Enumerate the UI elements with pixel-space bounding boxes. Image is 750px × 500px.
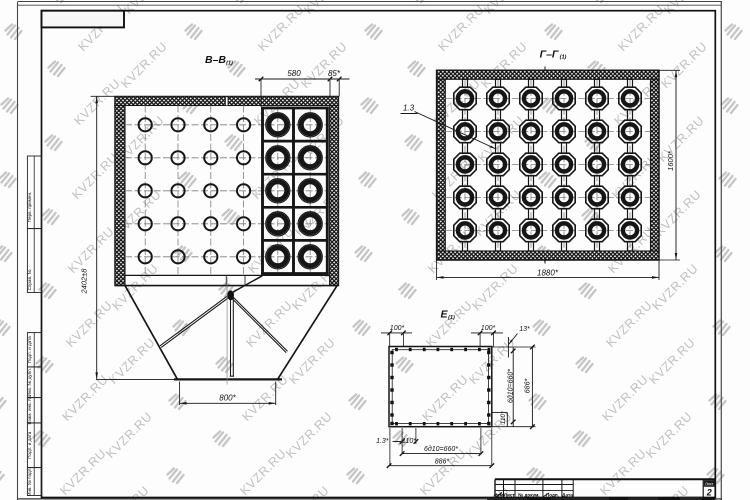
- svg-text:Подп. и дата: Подп. и дата: [27, 431, 32, 459]
- svg-text:886*: 886*: [435, 458, 450, 465]
- svg-text:1.3*: 1.3*: [376, 438, 389, 445]
- svg-text:1600*: 1600*: [666, 150, 675, 171]
- svg-text:6д10=660*: 6д10=660*: [507, 369, 515, 403]
- svg-text:110*: 110*: [500, 411, 507, 424]
- svg-text:85*: 85*: [328, 69, 341, 78]
- svg-text:2: 2: [706, 488, 712, 498]
- svg-text:100*: 100*: [481, 325, 496, 332]
- svg-text:В–В: В–В: [205, 54, 226, 66]
- svg-text:6д10=660*: 6д10=660*: [424, 445, 458, 453]
- svg-text:580: 580: [287, 69, 301, 78]
- svg-text:Справ. №: Справ. №: [27, 270, 32, 291]
- svg-text:(1): (1): [448, 315, 455, 321]
- svg-text:Г–Г: Г–Г: [540, 48, 559, 60]
- svg-text:13*: 13*: [519, 326, 530, 333]
- svg-text:2402±8: 2402±8: [79, 268, 88, 295]
- svg-text:(1): (1): [560, 55, 567, 61]
- svg-text:Инв. № подл.: Инв. № подл.: [27, 467, 32, 496]
- svg-text:Лист: Лист: [705, 482, 714, 486]
- svg-text:Подп. и дата: Подп. и дата: [27, 336, 32, 364]
- svg-text:Дата: Дата: [562, 492, 573, 497]
- svg-text:№ докум.: № докум.: [518, 492, 540, 497]
- svg-text:Инв. № дубл.: Инв. № дубл.: [27, 368, 32, 396]
- svg-text:(1): (1): [226, 61, 233, 67]
- svg-text:800*: 800*: [219, 393, 236, 402]
- svg-text:Перв. примен.: Перв. примен.: [27, 192, 32, 223]
- svg-text:1.3: 1.3: [403, 104, 415, 113]
- svg-text:Лист: Лист: [504, 492, 516, 497]
- svg-text:100*: 100*: [390, 325, 405, 332]
- svg-text:Взам. инв. №: Взам. инв. №: [27, 396, 32, 425]
- svg-text:686*: 686*: [525, 379, 532, 394]
- svg-text:1880*: 1880*: [537, 268, 559, 277]
